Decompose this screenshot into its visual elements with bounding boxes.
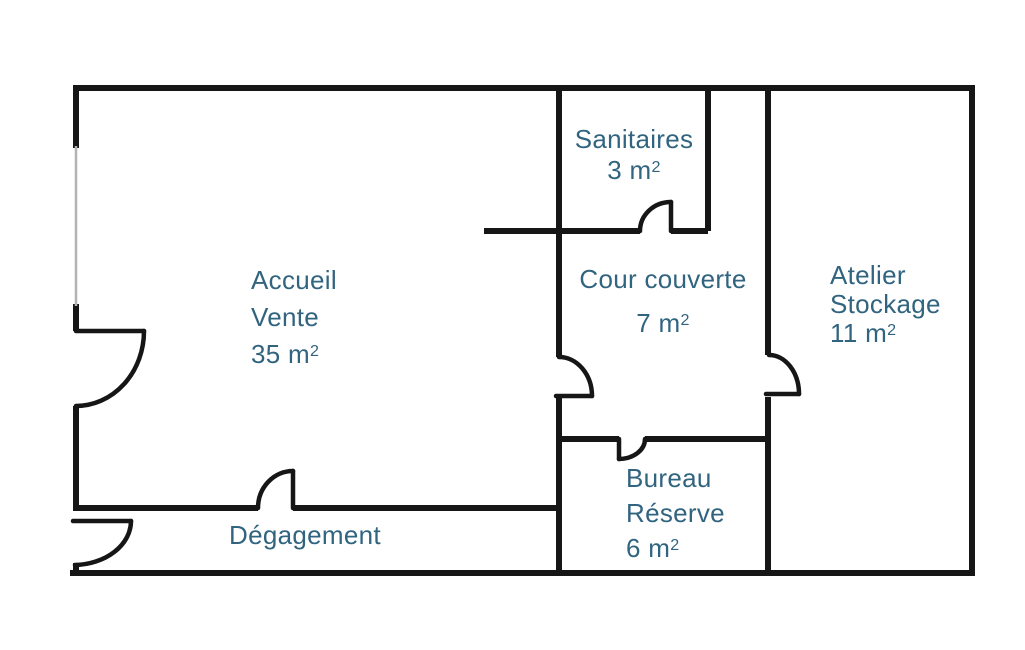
room-name: Accueil	[251, 262, 337, 299]
room-label-bureau-reserve: Bureau Réserve 6 m2	[626, 461, 725, 570]
room-area: 11 m2	[830, 319, 941, 352]
door-bureau	[619, 439, 645, 459]
door-swing-arc	[75, 521, 131, 565]
room-label-sanitaires: Sanitaires 3 m2	[561, 124, 707, 190]
door-swing-arc	[619, 439, 645, 459]
room-name: Cour couverte	[562, 264, 764, 295]
room-name: Atelier	[830, 261, 941, 290]
room-area: 6 m2	[626, 531, 725, 570]
door-accueil-cour	[556, 357, 592, 396]
door-degagement-accueil	[258, 471, 293, 508]
room-area: 35 m2	[251, 336, 337, 377]
door-swing-arc	[76, 331, 144, 406]
door-swing-arc	[769, 355, 799, 394]
room-name: Sanitaires	[561, 124, 707, 155]
door-swing-arc	[640, 202, 671, 231]
room-area: 3 m2	[561, 155, 707, 190]
door-swing-arc	[559, 357, 592, 396]
door-cour-atelier	[766, 355, 799, 394]
room-label-atelier-stockage: Atelier Stockage 11 m2	[830, 261, 941, 352]
room-area: 7 m2	[562, 308, 764, 343]
door-entrance-accueil	[76, 331, 144, 406]
door-entrance-degagement	[73, 521, 131, 565]
door-swing-arc	[258, 471, 293, 508]
room-label-degagement: Dégagement	[229, 520, 381, 551]
room-label-cour-couverte: Cour couverte 7 m2	[562, 264, 764, 343]
room-name: Vente	[251, 299, 337, 336]
room-label-accueil: Accueil Vente 35 m2	[251, 262, 337, 377]
room-name: Stockage	[830, 290, 941, 319]
floor-plan: Accueil Vente 35 m2 Sanitaires 3 m2 Cour…	[0, 0, 1025, 650]
door-sanitaires	[640, 202, 671, 231]
room-name: Réserve	[626, 496, 725, 531]
room-name: Dégagement	[229, 520, 381, 551]
room-name: Bureau	[626, 461, 725, 496]
